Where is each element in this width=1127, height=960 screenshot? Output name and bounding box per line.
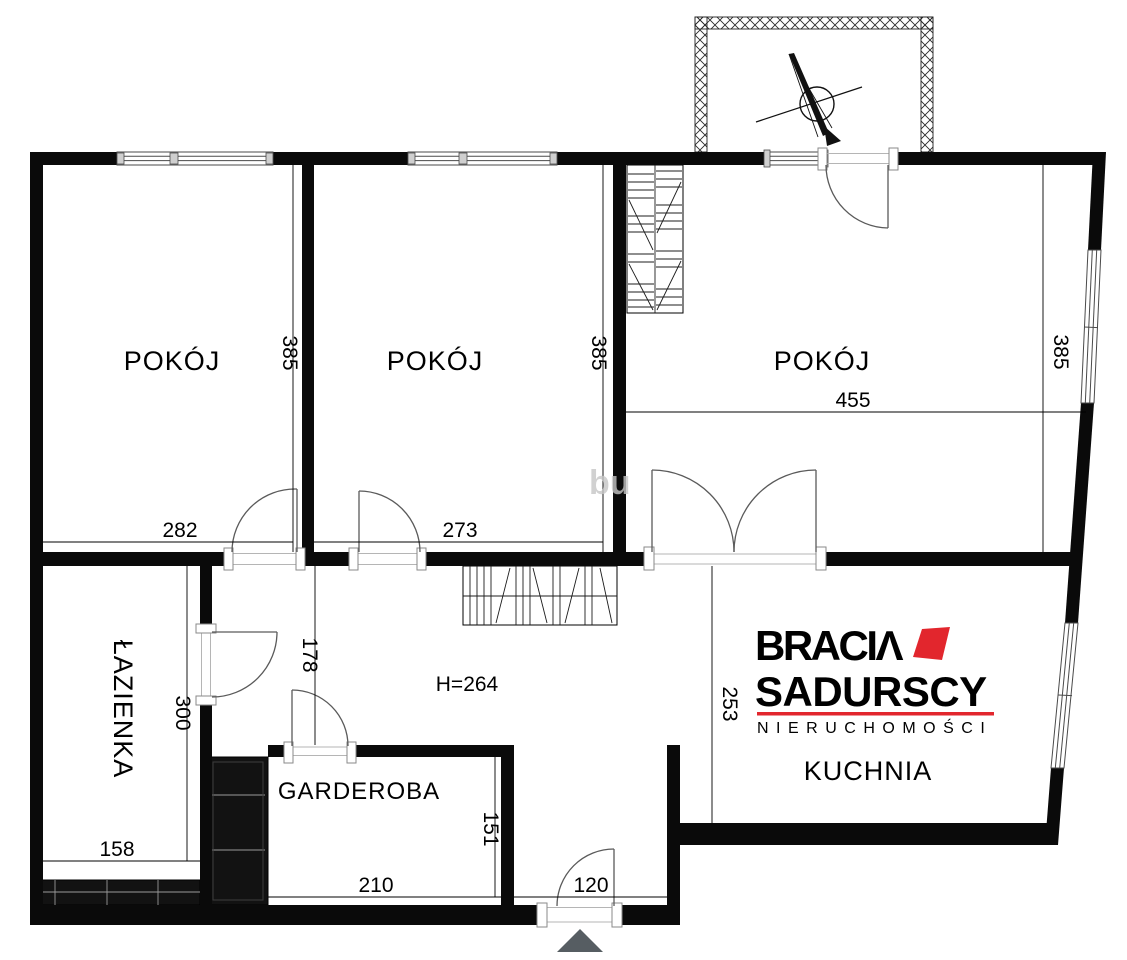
wall-right-1 — [1088, 152, 1106, 250]
dim-room1-depth: 385 — [278, 335, 301, 370]
wall-right-2 — [1065, 403, 1094, 623]
window-kitchen-slanted — [1051, 623, 1078, 768]
brand-accent-shape — [913, 627, 950, 660]
balcony-wall-right — [921, 17, 933, 152]
dimension-lines — [43, 165, 1086, 897]
wardrobe-hatch-hall — [463, 566, 617, 625]
window-room1 — [117, 152, 273, 165]
wall-left — [30, 152, 43, 925]
dim-room3-depth: 385 — [1049, 334, 1072, 369]
room-label-1: POKÓJ — [124, 345, 221, 376]
door-bathroom — [196, 624, 277, 705]
floor-plan-page: bu POKÓJ POKÓJ POKÓJ ŁAZIENKA GARDEROBA … — [0, 0, 1127, 960]
watermark-text: bu — [589, 464, 631, 502]
dim-hallway-depth: 178 — [298, 637, 321, 672]
dim-room2-width: 273 — [442, 519, 477, 542]
wall-middle-1 — [30, 552, 232, 566]
wardrobe-hatch-room3 — [627, 165, 683, 313]
dim-bathroom-depth: 300 — [171, 695, 194, 730]
door-room2 — [349, 491, 426, 570]
room-label-bathroom: ŁAZIENKA — [108, 640, 138, 779]
floor-plan: bu POKÓJ POKÓJ POKÓJ ŁAZIENKA GARDEROBA … — [0, 0, 1127, 960]
wall-kitchen-bottom — [667, 823, 1058, 845]
dim-room3-width: 455 — [835, 389, 870, 412]
brand-logo: BRACIΛ SADURSCY NIERUCHOMOŚCI — [755, 622, 994, 737]
room-label-kitchen: KUCHNIA — [804, 756, 933, 786]
room-label-2: POKÓJ — [387, 345, 484, 376]
dim-closet-depth: 151 — [479, 811, 502, 846]
brand-line3: NIERUCHOMOŚCI — [757, 718, 992, 737]
window-room3-slanted — [1081, 250, 1101, 403]
brand-line2: SADURSCY — [755, 668, 987, 715]
door-closet — [284, 690, 356, 763]
brand-line1: BRACIΛ — [755, 622, 903, 669]
entrance-marker — [557, 929, 603, 952]
room-label-closet: GARDEROBA — [278, 778, 440, 805]
dim-kitchen-depth: 253 — [718, 686, 741, 721]
wall-middle-4 — [818, 552, 1078, 566]
wall-top-2 — [273, 152, 408, 165]
wall-divider-room2-3 — [613, 165, 626, 566]
dim-entry-width: 120 — [573, 874, 608, 897]
wall-bathroom-2 — [200, 700, 212, 925]
wall-divider-room1-2 — [302, 165, 314, 566]
brand-rule — [757, 712, 994, 716]
room-label-3: POKÓJ — [774, 345, 871, 376]
wall-top-3 — [557, 152, 767, 165]
dim-room2-depth: 385 — [587, 335, 610, 370]
wardrobe-block — [208, 757, 268, 905]
dim-bathroom-width: 158 — [99, 838, 134, 861]
ceiling-height-label: H=264 — [436, 673, 499, 696]
bathtub — [36, 880, 200, 905]
door-balcony — [818, 148, 898, 228]
wall-top-1 — [30, 152, 117, 165]
doors — [196, 148, 898, 927]
wall-bottom-2 — [615, 905, 680, 925]
dim-closet-width: 210 — [358, 874, 393, 897]
wall-bottom-1 — [30, 905, 545, 925]
wall-bathroom-1 — [200, 566, 212, 632]
balcony — [695, 17, 933, 152]
balcony-wall-left — [695, 17, 707, 152]
wall-top-4 — [891, 152, 1103, 165]
door-double-kitchen — [644, 470, 826, 570]
window-room2 — [408, 152, 557, 165]
wall-closet-top-2 — [348, 745, 514, 757]
balcony-wall-top — [695, 17, 933, 29]
north-arrow-icon — [756, 53, 862, 146]
dim-room1-width: 282 — [162, 519, 197, 542]
